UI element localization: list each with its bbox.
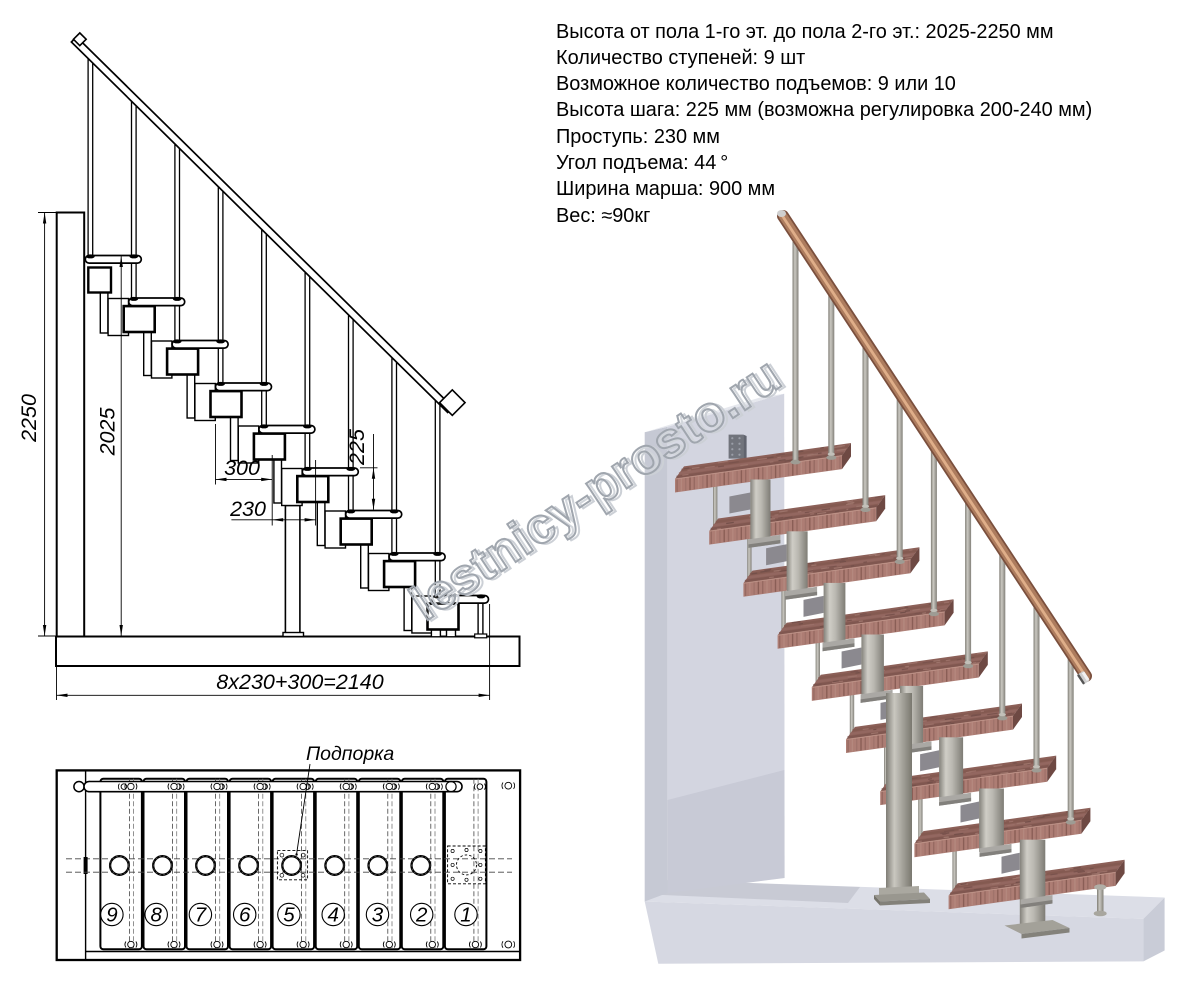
svg-text:6: 6 xyxy=(239,904,251,927)
svg-text:4: 4 xyxy=(327,904,338,927)
svg-text:8x230+300=2140: 8x230+300=2140 xyxy=(216,670,383,694)
svg-text:2250: 2250 xyxy=(17,394,41,443)
svg-text:230: 230 xyxy=(229,497,266,521)
svg-text:225: 225 xyxy=(345,428,369,466)
svg-text:9: 9 xyxy=(106,904,117,927)
svg-text:2025: 2025 xyxy=(96,407,120,457)
svg-text:3: 3 xyxy=(372,904,384,927)
svg-text:1: 1 xyxy=(460,904,471,927)
svg-text:Подпорка: Подпорка xyxy=(306,743,394,765)
svg-text:2: 2 xyxy=(415,904,428,927)
svg-text:7: 7 xyxy=(195,904,208,927)
svg-text:5: 5 xyxy=(283,904,295,927)
svg-text:8: 8 xyxy=(150,904,162,927)
svg-text:300: 300 xyxy=(224,456,260,480)
